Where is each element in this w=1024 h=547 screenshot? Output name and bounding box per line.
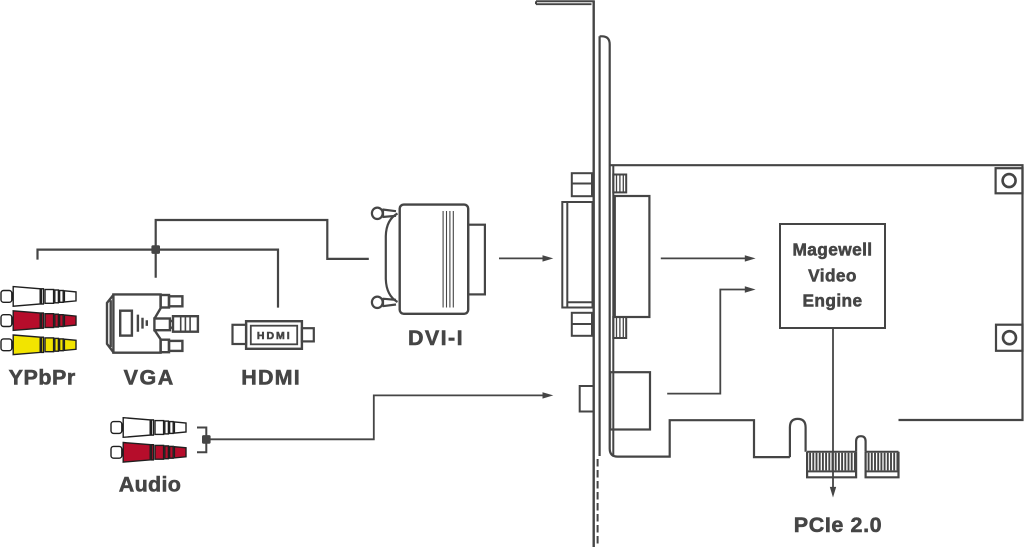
svg-text:DVI-I: DVI-I [408,326,464,350]
svg-text:Audio: Audio [119,473,181,497]
svg-text:YPbPr: YPbPr [9,366,76,390]
svg-text:HDMI: HDMI [241,366,301,390]
svg-text:Magewell: Magewell [792,240,872,260]
svg-text:Video: Video [808,265,857,285]
svg-text:HDMI: HDMI [257,330,292,342]
svg-text:VGA: VGA [124,366,175,390]
svg-text:Engine: Engine [802,291,862,311]
svg-text:PCIe 2.0: PCIe 2.0 [794,513,882,537]
